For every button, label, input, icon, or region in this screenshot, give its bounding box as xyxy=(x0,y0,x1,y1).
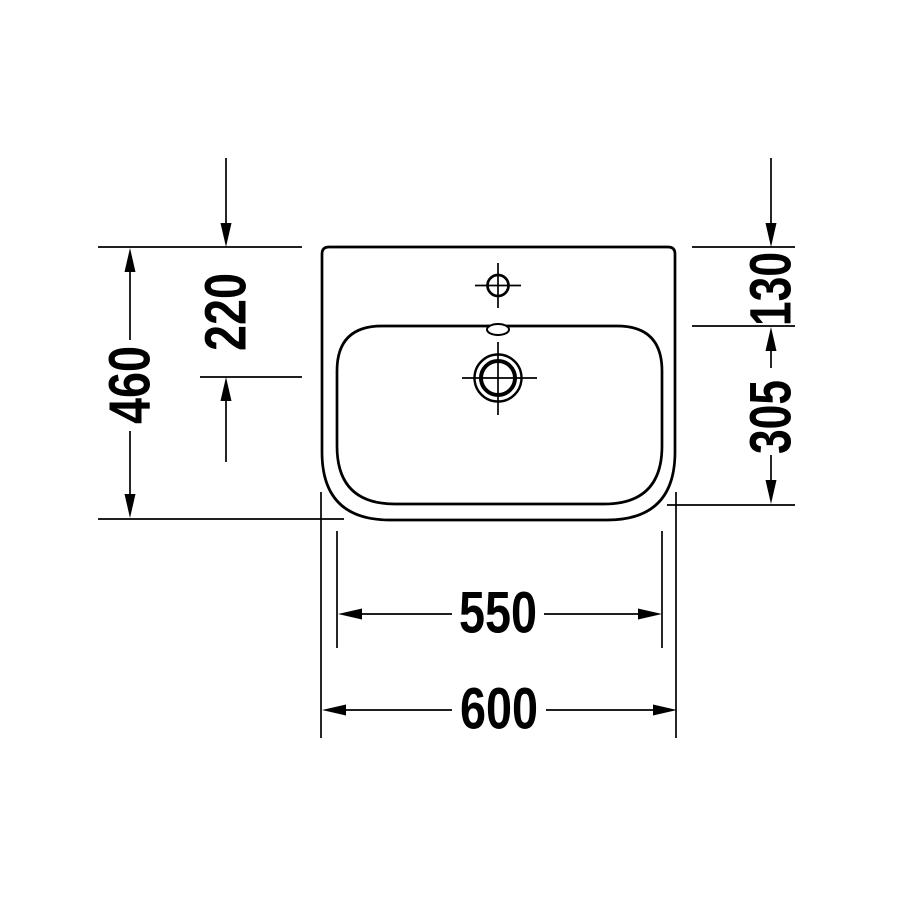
arrowhead-220-up xyxy=(221,377,232,401)
arrowhead-305-up xyxy=(766,327,777,351)
arrowhead-550-left xyxy=(338,609,362,620)
overflow-slot xyxy=(487,324,509,335)
basin-width-label: 550 xyxy=(459,581,537,646)
arrowhead-550-right xyxy=(638,609,662,620)
overall-width-label: 600 xyxy=(460,677,538,742)
arrowhead-460-up xyxy=(125,248,136,272)
basin-depth-label: 305 xyxy=(739,380,804,454)
arrowhead-220-down xyxy=(221,223,232,247)
overall-depth-label: 460 xyxy=(98,346,163,424)
arrowhead-600-left xyxy=(322,705,346,716)
arrowhead-600-right xyxy=(653,705,677,716)
tap-hole xyxy=(475,263,521,308)
arrowhead-460-down xyxy=(125,494,136,518)
drawing-canvas: 460 220 130 305 550 600 xyxy=(0,0,900,900)
drain xyxy=(462,342,537,415)
arrowhead-305-down xyxy=(766,480,777,504)
washbasin-technical-drawing: 460 220 130 305 550 600 xyxy=(0,0,900,900)
drain-depth-label: 220 xyxy=(194,273,259,351)
arrowhead-130-down xyxy=(766,223,777,247)
basin-outline xyxy=(337,326,662,504)
back-to-basin-label: 130 xyxy=(739,252,804,326)
